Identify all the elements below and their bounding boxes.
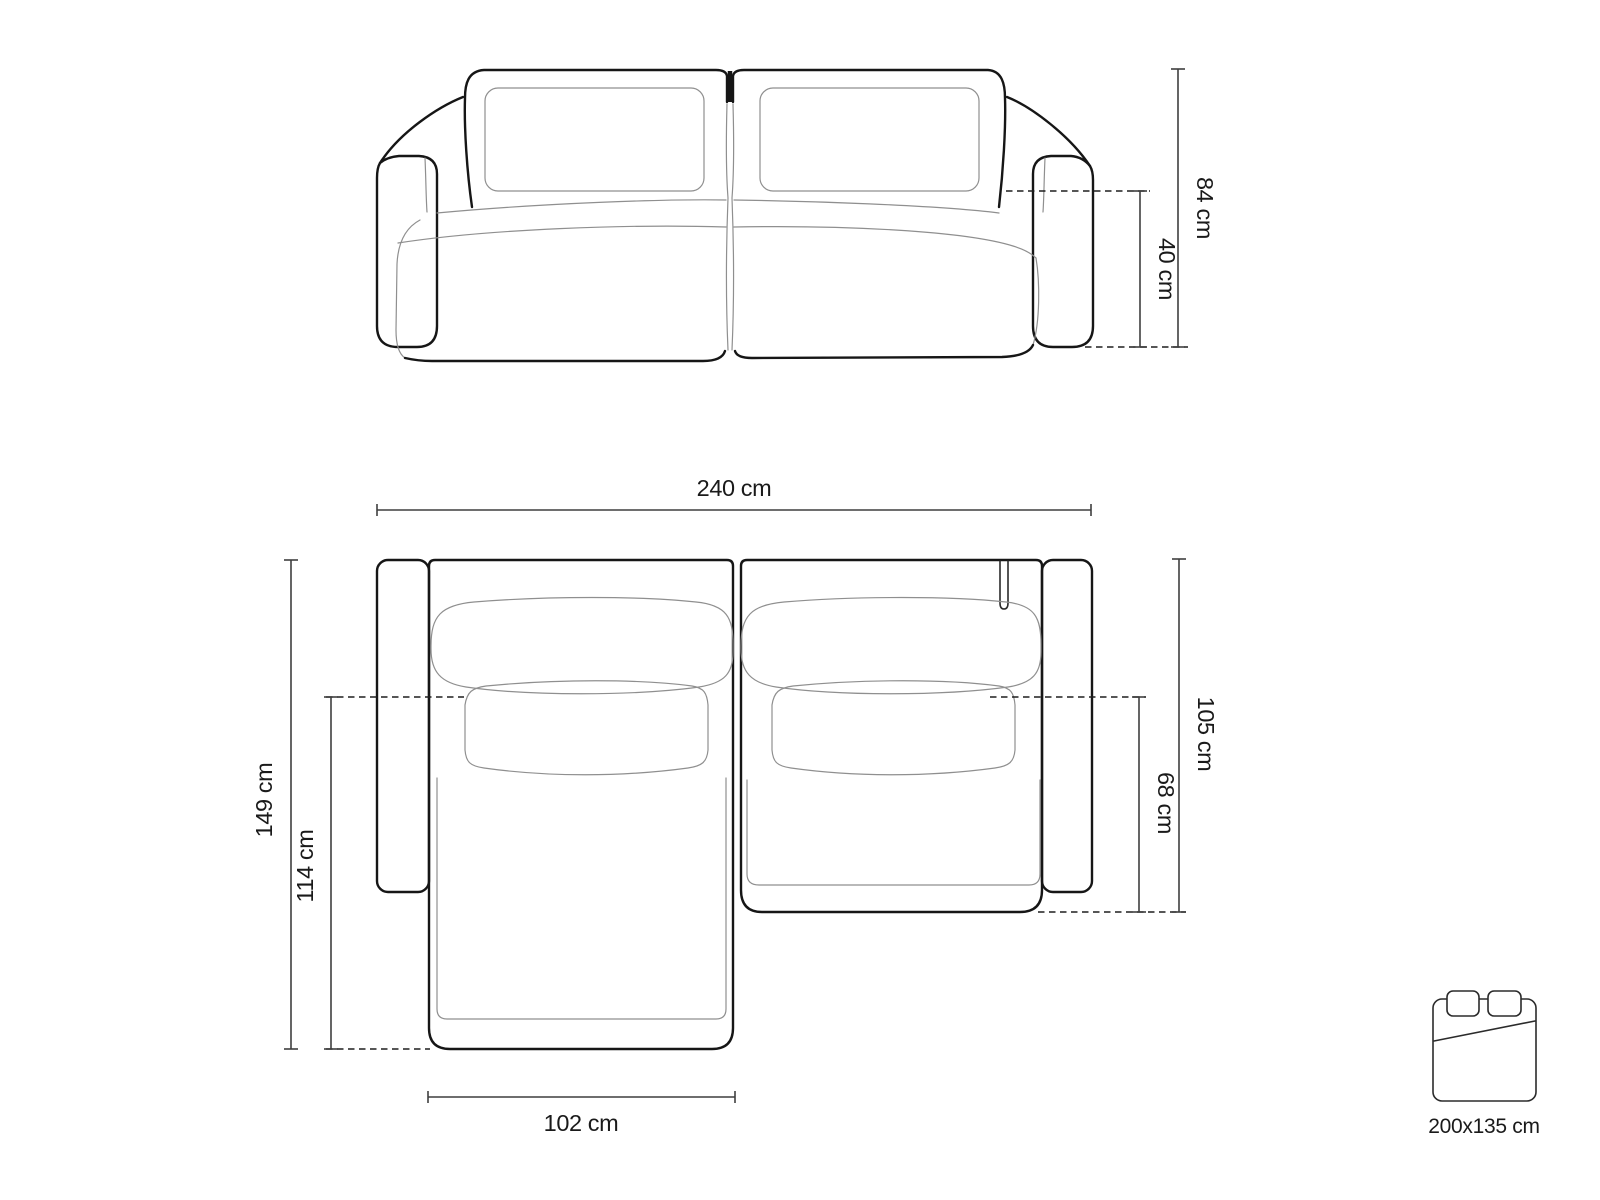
sleeping-area-size-label: 200x135 cm <box>1428 1115 1539 1138</box>
top-seat-cushion-left <box>465 681 708 775</box>
dim-seat-height: 40 cm <box>1133 191 1180 347</box>
dim-total-depth: 149 cm <box>251 560 298 1049</box>
top-back-cushion-left <box>431 598 733 694</box>
front-backrest-left <box>465 70 727 207</box>
top-right-body-inner-seam <box>747 780 1040 885</box>
dim-total-width: 240 cm <box>377 475 1091 516</box>
front-armrest-left-inner-seam <box>425 158 427 212</box>
front-armrest-right-inner-seam <box>1043 158 1045 212</box>
top-back-cushion-right <box>741 598 1041 694</box>
sofa-front-view: 84 cm 40 cm <box>377 69 1218 361</box>
front-back-cushion-left <box>485 88 704 191</box>
front-armrest-left <box>377 156 437 347</box>
dim-chaise-width-label: 102 cm <box>544 1110 619 1136</box>
sofa-top-view: 240 cm 149 cm <box>251 475 1219 1136</box>
front-shoulder-left <box>380 97 463 163</box>
sofa-dimensions-page: 84 cm 40 cm 240 cm <box>0 0 1600 1200</box>
front-backrest-right <box>733 70 1005 207</box>
front-back-cushion-right <box>760 88 979 191</box>
front-seat-left-bottom-edge <box>405 351 725 361</box>
dim-total-width-label: 240 cm <box>697 475 772 501</box>
front-seat-right-top-edge <box>734 227 1036 258</box>
dim-chaise-width: 102 cm <box>428 1091 735 1136</box>
dim-total-depth-label: 149 cm <box>251 763 277 838</box>
sofa-dimensions-diagram: 84 cm 40 cm 240 cm <box>0 0 1600 1200</box>
top-chaise-outline <box>429 560 733 1049</box>
dim-body-depth: 105 cm <box>1172 559 1219 912</box>
top-armrest-left <box>377 560 429 892</box>
dim-seat-depth: 68 cm <box>1132 697 1179 912</box>
top-chaise-inner-seam <box>437 778 726 1019</box>
dim-seat-height-label: 40 cm <box>1154 238 1180 300</box>
bed-pillow-right-icon <box>1488 991 1521 1016</box>
top-right-body-outline <box>741 560 1042 912</box>
sleeping-area-info: 200x135 cm <box>1428 991 1539 1138</box>
front-seat-right-bottom-edge <box>735 345 1033 358</box>
bed-pillow-left-icon <box>1447 991 1479 1016</box>
dim-total-height: 84 cm <box>1006 69 1218 347</box>
dim-seat-depth-label: 68 cm <box>1153 772 1179 834</box>
dim-chaise-depth: 114 cm <box>292 697 338 1049</box>
top-armrest-right <box>1042 560 1092 892</box>
dim-total-height-label: 84 cm <box>1192 177 1218 239</box>
dim-body-depth-label: 105 cm <box>1193 697 1219 772</box>
front-seat-left-top-edge <box>398 226 726 243</box>
front-seat-right-back-edge <box>734 200 999 213</box>
front-seat-left-back-edge <box>437 200 726 213</box>
front-armrest-right <box>1033 156 1093 347</box>
dim-chaise-depth-label: 114 cm <box>292 830 318 903</box>
top-seat-cushion-right <box>772 681 1015 775</box>
